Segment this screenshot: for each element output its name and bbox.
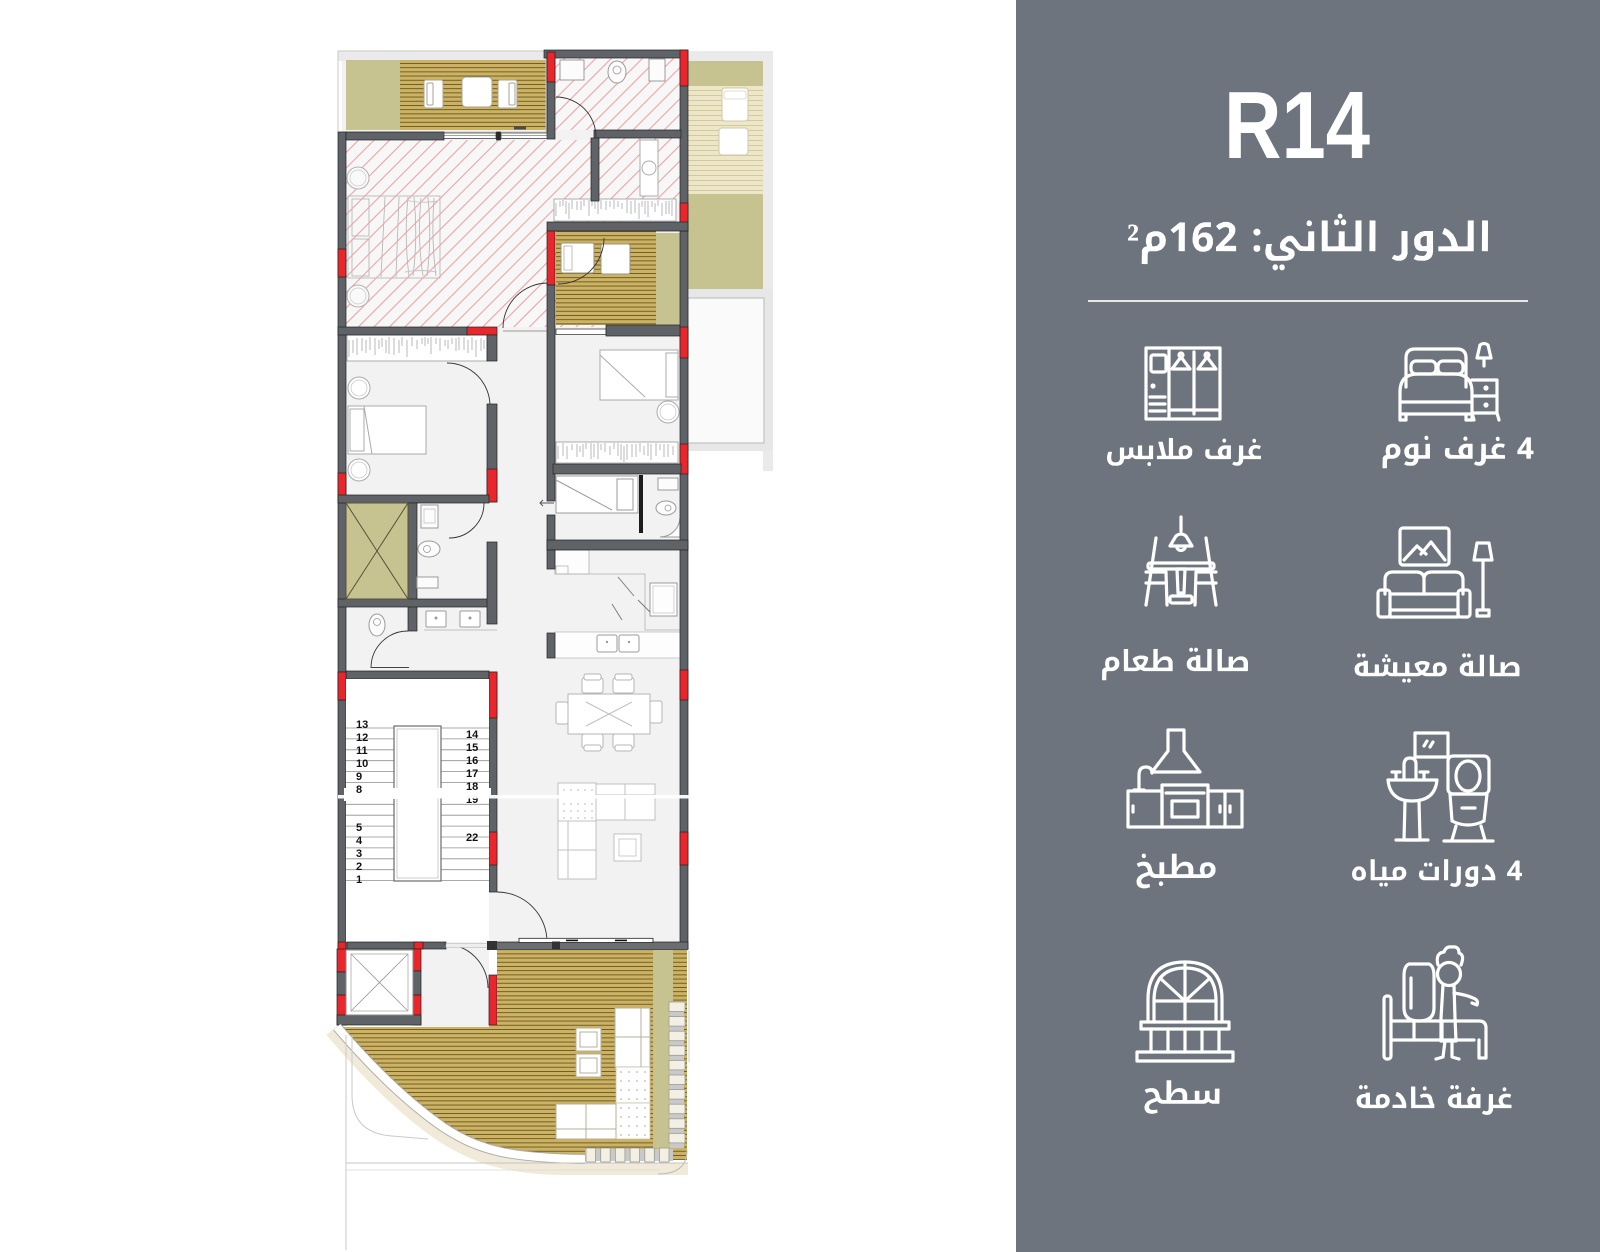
svg-text:13: 13	[356, 719, 368, 731]
svg-text:9: 9	[356, 771, 362, 783]
svg-text:5: 5	[356, 822, 362, 834]
svg-text:8: 8	[356, 784, 362, 796]
svg-text:18: 18	[466, 781, 478, 793]
svg-text:3: 3	[356, 848, 362, 860]
svg-text:22: 22	[466, 832, 478, 844]
svg-text:2: 2	[356, 861, 362, 873]
svg-text:17: 17	[466, 768, 478, 780]
svg-text:14: 14	[466, 729, 479, 741]
svg-text:10: 10	[356, 758, 368, 770]
svg-text:11: 11	[356, 745, 368, 757]
svg-text:12: 12	[356, 732, 368, 744]
svg-text:16: 16	[466, 755, 478, 767]
svg-text:4: 4	[356, 835, 363, 847]
svg-text:15: 15	[466, 742, 478, 754]
svg-text:R14: R14	[1224, 72, 1370, 179]
svg-text:1: 1	[356, 874, 362, 886]
